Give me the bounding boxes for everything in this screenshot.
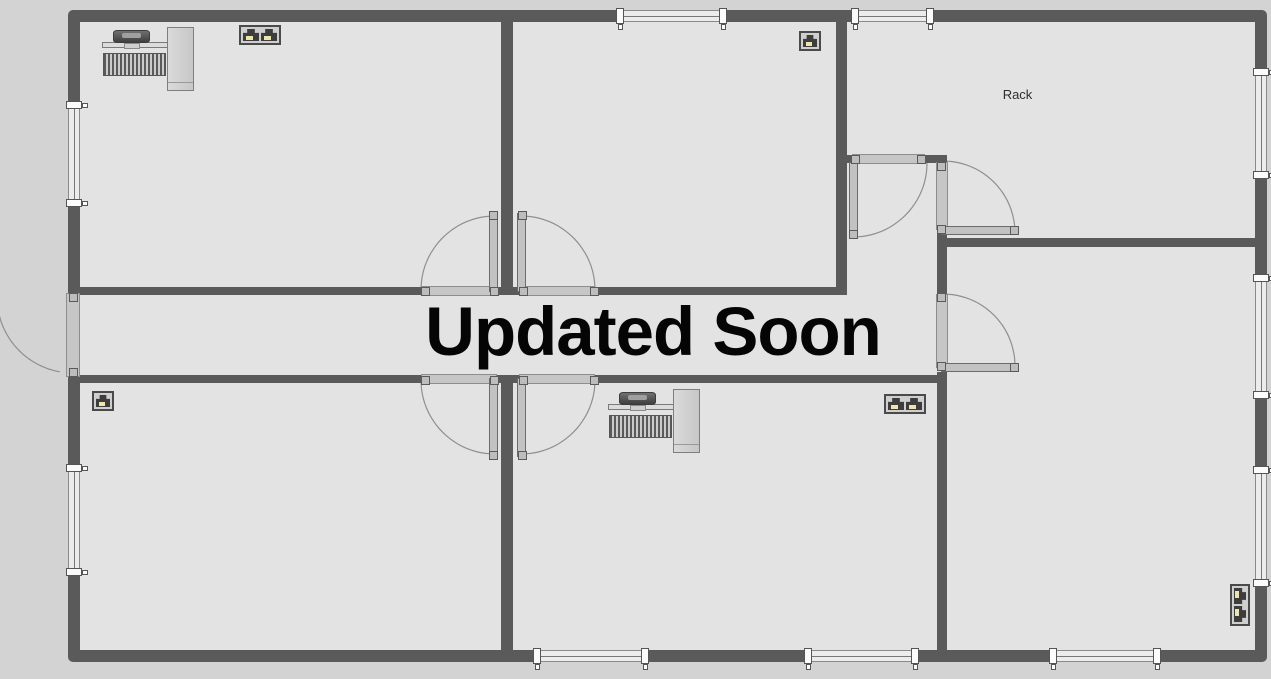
window-left-1-cap-start-nub	[82, 103, 88, 108]
door-rack-room-handle-1	[937, 225, 946, 234]
keyboard-icon	[103, 53, 166, 76]
wall-corridor-bottom-right	[595, 375, 937, 383]
window-bottom-3-cap-end	[1153, 648, 1161, 664]
wall-rack-room-bottom	[937, 238, 1255, 247]
wall-corridor-bottom-center-stub	[497, 375, 519, 383]
window-bottom-2-cap-end-nub	[913, 664, 918, 670]
window-top-2-cap-end	[926, 8, 934, 24]
door-corridor-lower-left-opening[interactable]	[421, 374, 497, 384]
door-corridor-lower-left-leaf[interactable]	[489, 378, 498, 457]
door-corridor-lower-right-handle-0	[590, 376, 599, 385]
window-left-2-cap-end-nub	[82, 570, 88, 575]
window-bottom-1-cap-start-nub	[535, 664, 540, 670]
wall-topmiddle-room-right	[836, 22, 847, 295]
door-corridor-upper-left-handle-2	[489, 211, 498, 220]
door-corridor-lower-left-handle-0	[421, 376, 430, 385]
window-left-1-cap-start	[66, 101, 82, 109]
door-vestibule-top-opening[interactable]	[852, 154, 925, 164]
door-corridor-lower-right-leaf[interactable]	[517, 378, 526, 457]
wall-jack-single-top-middle[interactable]	[799, 31, 821, 51]
door-corridor-upper-right-handle-2	[518, 211, 527, 220]
window-right-3-cap-start	[1253, 466, 1269, 474]
door-vestibule-top-handle-2	[849, 230, 858, 239]
window-right-3	[1255, 470, 1267, 583]
wall-jack-double-right[interactable]	[1230, 584, 1250, 626]
door-exterior-left-handle-0	[69, 293, 78, 302]
floorplan-canvas: Updated Soon Rack	[0, 0, 1271, 679]
rj45-port-icon	[243, 29, 259, 41]
door-corridor-right-handle-2	[1010, 363, 1019, 372]
rack-label: Rack	[957, 87, 1078, 103]
window-left-1-cap-end	[66, 199, 82, 207]
window-right-2-cap-start	[1253, 274, 1269, 282]
window-top-2-cap-start	[851, 8, 859, 24]
door-rack-room-handle-0	[937, 162, 946, 171]
door-exterior-left-handle-1	[69, 368, 78, 377]
watermark-text: Updated Soon	[394, 297, 912, 366]
door-corridor-right-opening[interactable]	[936, 294, 948, 368]
monitor-icon	[113, 30, 150, 43]
monitor-base-icon	[630, 405, 646, 411]
door-corridor-right-leaf[interactable]	[941, 363, 1017, 372]
window-top-1-cap-start	[616, 8, 624, 24]
window-right-2	[1255, 278, 1267, 395]
window-bottom-1-cap-end-nub	[643, 664, 648, 670]
door-rack-room-opening[interactable]	[936, 162, 948, 230]
window-bottom-3-cap-start	[1049, 648, 1057, 664]
window-right-1-cap-start	[1253, 68, 1269, 76]
rj45-port-icon	[906, 398, 922, 410]
window-top-2-cap-end-nub	[928, 24, 933, 30]
monitor-icon	[619, 392, 656, 405]
wall-corridor-top-left	[80, 287, 421, 295]
door-corridor-upper-left-leaf[interactable]	[489, 213, 498, 292]
wall-corridor-bottom-left	[80, 375, 421, 383]
window-right-1	[1255, 72, 1267, 175]
window-bottom-2-cap-start	[804, 648, 812, 664]
door-vestibule-top-leaf[interactable]	[849, 162, 858, 238]
door-vestibule-top-handle-1	[917, 155, 926, 164]
window-top-2-cap-start-nub	[853, 24, 858, 30]
keyboard-icon	[609, 415, 672, 438]
window-right-2-cap-end	[1253, 391, 1269, 399]
window-bottom-2-cap-end	[911, 648, 919, 664]
door-rack-room-handle-2	[1010, 226, 1019, 235]
wall-jack-single-bottom-left[interactable]	[92, 391, 114, 411]
computer-tower-icon	[673, 389, 700, 453]
door-vestibule-top-handle-0	[851, 155, 860, 164]
workstation-top-left[interactable]	[100, 27, 200, 93]
door-corridor-upper-right-leaf[interactable]	[517, 213, 526, 292]
workstation-bottom-middle[interactable]	[606, 389, 706, 455]
rj45-port-icon	[96, 395, 110, 407]
door-corridor-lower-left-handle-2	[489, 451, 498, 460]
window-right-3-cap-end	[1253, 579, 1269, 587]
door-corridor-lower-right-handle-1	[519, 376, 528, 385]
window-top-1-cap-start-nub	[618, 24, 623, 30]
window-bottom-3-cap-end-nub	[1155, 664, 1160, 670]
window-bottom-2-cap-start-nub	[806, 664, 811, 670]
window-bottom-2	[808, 650, 915, 662]
window-bottom-1-cap-end	[641, 648, 649, 664]
rj45-port-icon	[888, 398, 904, 410]
wall-top-rooms-divider	[501, 22, 513, 287]
door-corridor-right-handle-0	[937, 293, 946, 302]
door-corridor-right-handle-1	[937, 362, 946, 371]
door-exterior-left-swing-arc	[0, 310, 60, 372]
door-exterior-left-opening[interactable]	[66, 293, 80, 377]
window-left-1-cap-end-nub	[82, 201, 88, 206]
window-left-2-cap-end	[66, 568, 82, 576]
wall-jack-double-top-left[interactable]	[239, 25, 281, 45]
rj45-port-icon	[803, 35, 817, 47]
door-rack-room-leaf[interactable]	[941, 226, 1017, 235]
monitor-base-icon	[124, 43, 140, 49]
window-right-1-cap-end	[1253, 171, 1269, 179]
window-left-2	[68, 468, 80, 572]
window-bottom-1	[537, 650, 645, 662]
wall-right-rooms-divider-lower	[937, 372, 947, 650]
window-left-2-cap-start	[66, 464, 82, 472]
door-corridor-lower-left-handle-1	[490, 376, 499, 385]
door-corridor-lower-right-handle-2	[518, 451, 527, 460]
window-bottom-3	[1053, 650, 1157, 662]
door-corridor-lower-right-opening[interactable]	[519, 374, 595, 384]
rj45-port-icon	[261, 29, 277, 41]
window-left-2-cap-start-nub	[82, 466, 88, 471]
window-bottom-1-cap-start	[533, 648, 541, 664]
rj45-port-icon	[1234, 588, 1246, 604]
window-top-2	[855, 10, 930, 22]
window-left-1	[68, 105, 80, 203]
rj45-port-icon	[1234, 606, 1246, 622]
window-bottom-3-cap-start-nub	[1051, 664, 1056, 670]
window-top-1	[620, 10, 723, 22]
wall-bottom-rooms-divider	[501, 383, 513, 650]
computer-tower-icon	[167, 27, 194, 91]
window-top-1-cap-end-nub	[721, 24, 726, 30]
wall-jack-double-bottom-middle[interactable]	[884, 394, 926, 414]
window-top-1-cap-end	[719, 8, 727, 24]
